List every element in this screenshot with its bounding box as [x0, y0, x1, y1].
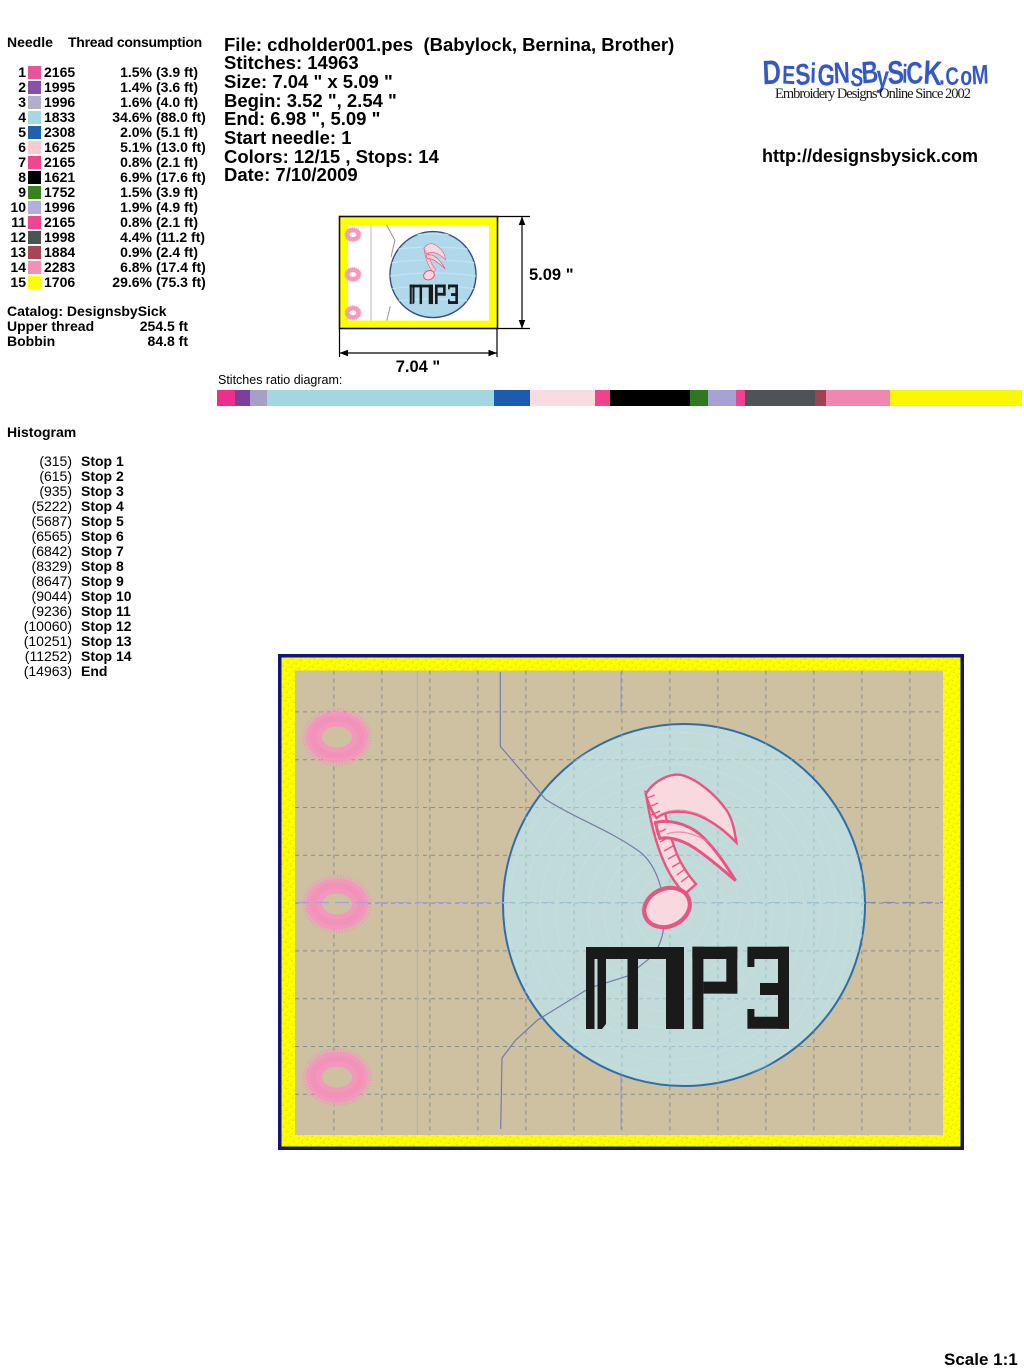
- svg-text:5.09 ": 5.09 ": [529, 266, 574, 284]
- svg-text:Embroidery Designs Online Sinc: Embroidery Designs Online Since 2002: [775, 86, 971, 102]
- svg-text:7.04 ": 7.04 ": [396, 358, 441, 376]
- svg-text:i: i: [810, 59, 817, 90]
- svg-text:M: M: [971, 60, 989, 92]
